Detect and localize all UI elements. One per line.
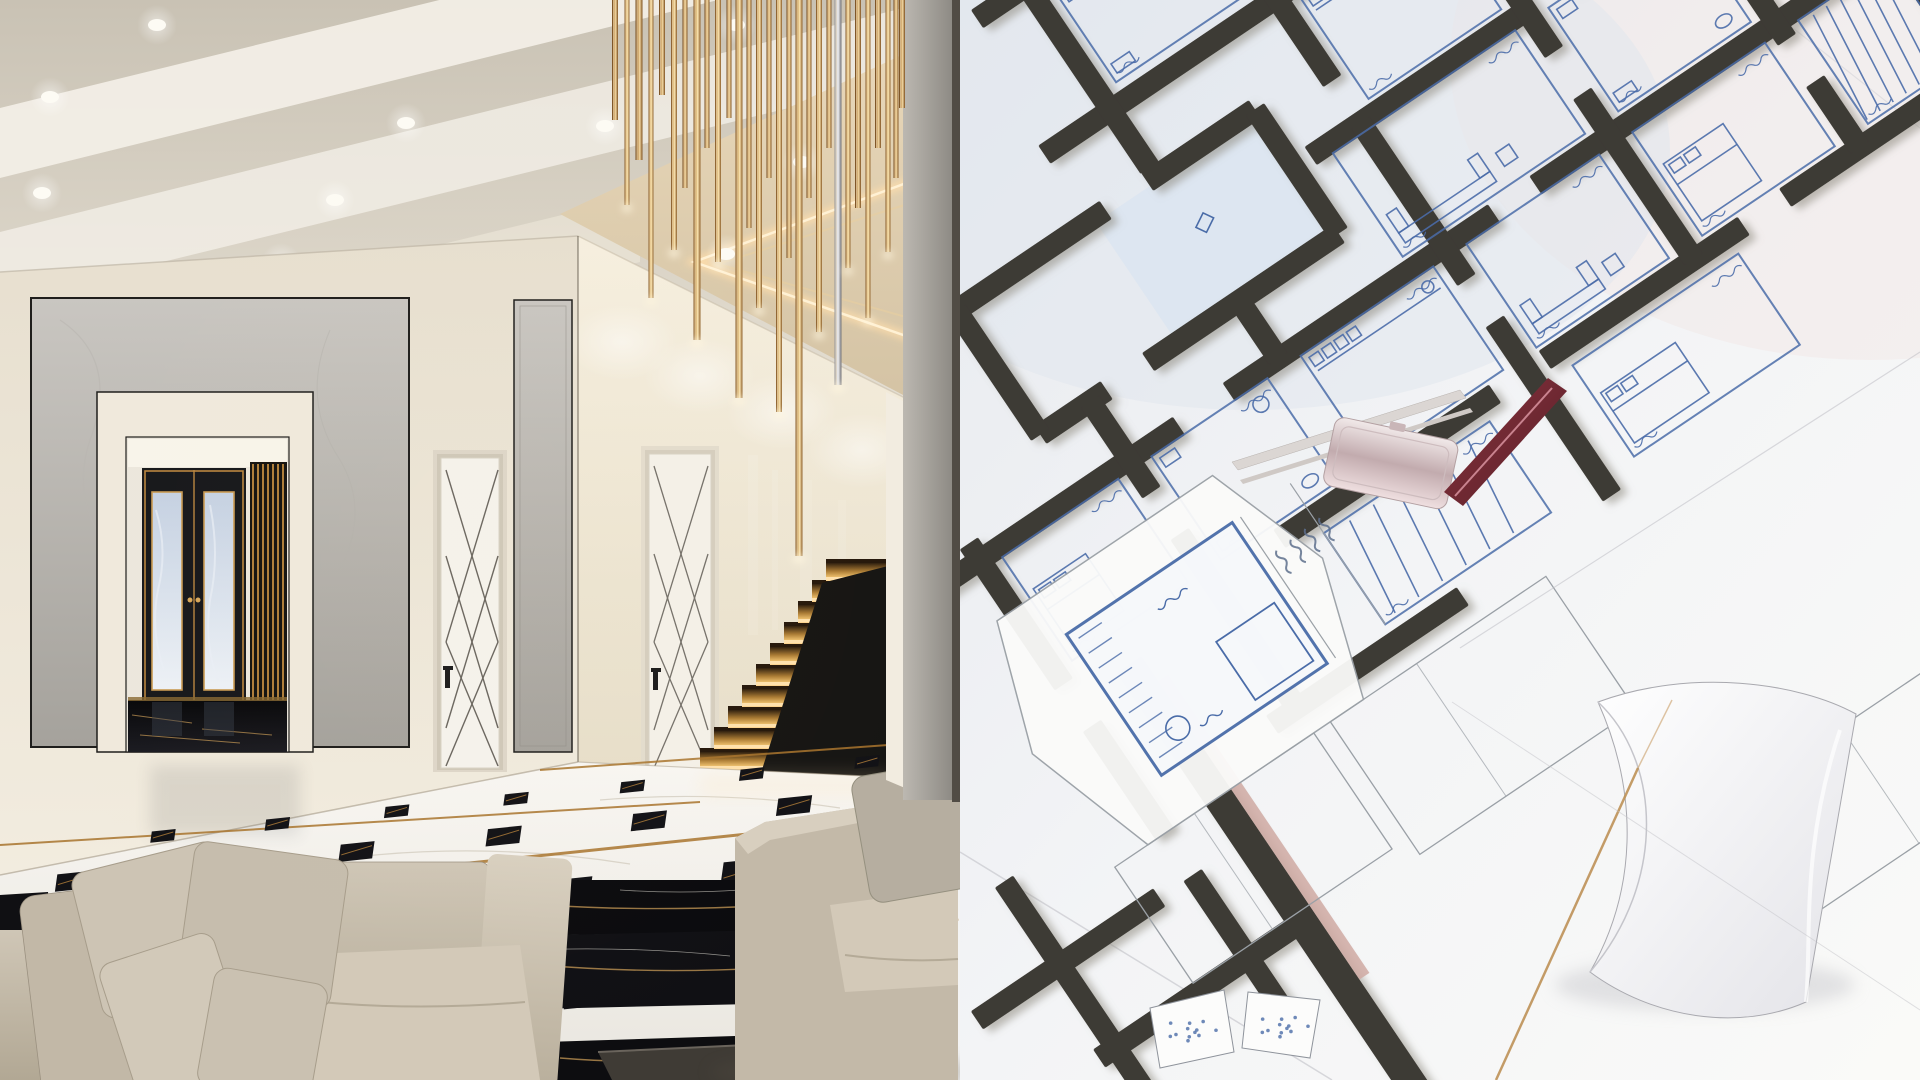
- ink-dot: [1280, 1017, 1284, 1021]
- ink-dot: [1186, 1039, 1190, 1043]
- ink-dot: [1278, 1023, 1282, 1027]
- interior-render-panel: [0, 0, 990, 1080]
- ink-dot: [1261, 1031, 1265, 1035]
- ink-dot: [1289, 1030, 1293, 1034]
- ink-dot: [1169, 1021, 1173, 1025]
- ink-dot: [1306, 1024, 1310, 1028]
- ink-dot: [1174, 1033, 1178, 1037]
- ink-dot: [1188, 1021, 1192, 1025]
- ink-dot: [1169, 1035, 1173, 1039]
- ink-dot: [1201, 1020, 1205, 1024]
- ink-dot: [1187, 1035, 1191, 1039]
- ink-dot: [1193, 1031, 1197, 1035]
- ink-dot: [1214, 1028, 1218, 1032]
- warm-overlay: [0, 0, 960, 1080]
- ink-dot: [1285, 1027, 1289, 1031]
- scene-svg: [0, 0, 1920, 1080]
- ink-dot: [1266, 1029, 1270, 1033]
- composite-screenshot: [0, 0, 1920, 1080]
- ink-dot: [1279, 1031, 1283, 1035]
- ink-dot: [1186, 1027, 1190, 1031]
- ink-dot: [1293, 1016, 1297, 1020]
- ink-dot: [1278, 1035, 1282, 1039]
- ink-dot: [1261, 1017, 1265, 1021]
- ink-dot: [1197, 1034, 1201, 1038]
